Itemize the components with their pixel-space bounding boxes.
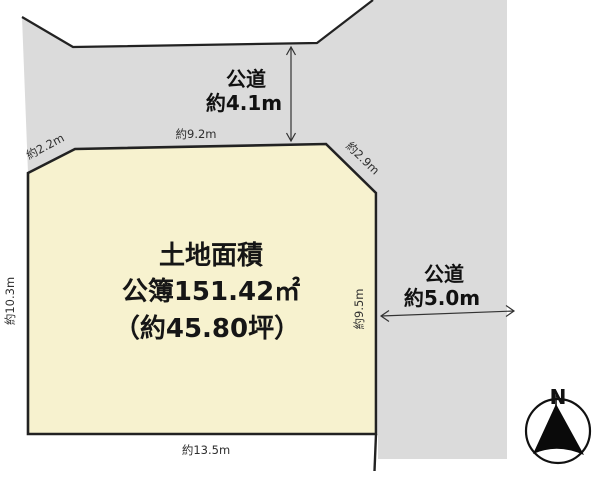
plot-survey-canvas: 土地面積 公簿151.42㎡ （約45.80坪） 公道 約4.1m 公道 約5.…	[0, 0, 600, 484]
dimension-bottom-edge: 約13.5m	[182, 443, 230, 457]
parcel-area-title: 土地面積	[159, 241, 263, 271]
dimension-top-edge: 約9.2m	[176, 127, 217, 141]
road-top-name: 公道	[226, 67, 266, 91]
road-top-width: 約4.1m	[206, 91, 282, 115]
road-right-width: 約5.0m	[404, 286, 480, 310]
parcel-area-registered: 公簿151.42㎡	[122, 276, 300, 307]
compass: N	[526, 385, 590, 463]
parcel-area-tsubo: （約45.80坪）	[114, 313, 300, 344]
dimension-left-edge: 約10.3m	[3, 277, 17, 325]
land-plot-diagram: 土地面積 公簿151.42㎡ （約45.80坪） 公道 約4.1m 公道 約5.…	[0, 0, 600, 484]
road-right-name: 公道	[424, 262, 464, 286]
right-boundary-extension-line	[375, 434, 377, 471]
compass-north-label: N	[550, 385, 567, 409]
dimension-right-edge: 約9.5m	[352, 289, 366, 330]
road-upper-boundary-line	[22, 0, 373, 47]
